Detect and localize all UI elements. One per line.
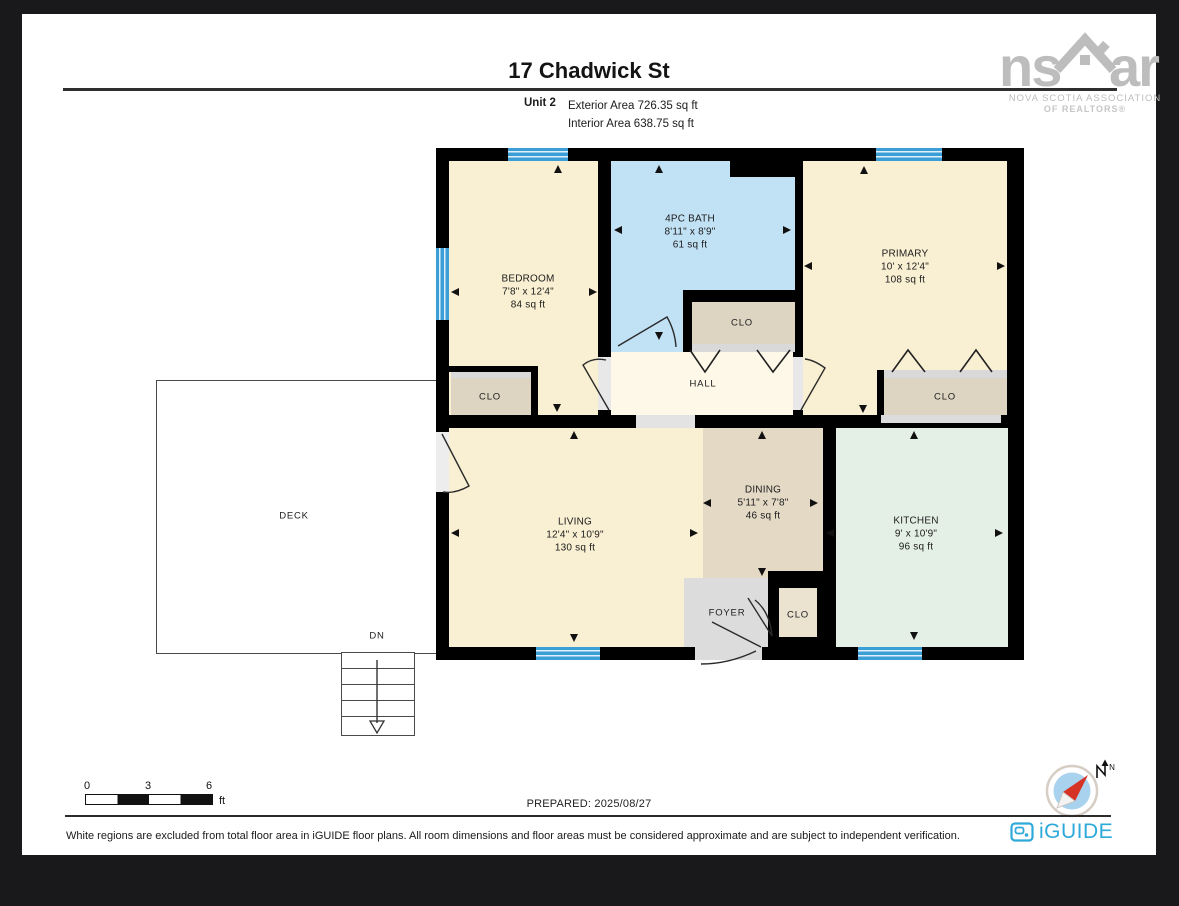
iguide-logo: iGUIDE — [1010, 820, 1113, 844]
label-stairs-dn: DN — [369, 631, 384, 642]
scale-label-3: 3 — [145, 780, 151, 792]
dim-arrow-up — [910, 431, 918, 439]
dim-arrow-down — [553, 404, 561, 412]
scale-label-0: 0 — [84, 780, 90, 792]
iguide-wordmark: iGUIDE — [1039, 820, 1113, 844]
dim-arrow-left — [451, 529, 459, 537]
label-dining: DINING 5'11" x 7'8" 46 sq ft — [738, 484, 789, 523]
footer-disclaimer: White regions are excluded from total fl… — [66, 830, 960, 842]
bifold-door-icon — [757, 350, 790, 372]
dim-arrow-right — [995, 529, 1003, 537]
label-closet: CLO — [934, 392, 956, 403]
dim-arrow-up — [570, 431, 578, 439]
bifold-door-icon — [690, 350, 720, 372]
bedroom-door-swing — [583, 359, 609, 410]
label-closet: CLO — [731, 318, 753, 329]
dim-arrow-left — [804, 262, 812, 270]
dim-arrow-left — [826, 529, 834, 537]
footer-divider — [65, 815, 1111, 817]
dim-arrow-left — [451, 288, 459, 296]
label-kitchen: KITCHEN 9' x 10'9" 96 sq ft — [893, 515, 938, 554]
dim-arrow-down — [758, 568, 766, 576]
label-living: LIVING 12'4" x 10'9" 130 sq ft — [546, 516, 603, 555]
deck-door-swing — [442, 434, 469, 492]
dim-arrow-down — [655, 332, 663, 340]
label-foyer: FOYER — [709, 608, 746, 619]
dim-arrow-right — [589, 288, 597, 296]
bifold-door-icon — [960, 350, 992, 372]
scale-label-6: 6 — [206, 780, 212, 792]
compass-icon: N — [1040, 758, 1116, 820]
label-closet: CLO — [479, 392, 501, 403]
scale-bar — [85, 794, 213, 805]
dim-arrow-up — [860, 166, 868, 174]
dim-arrow-up — [655, 165, 663, 173]
dim-arrow-right — [997, 262, 1005, 270]
door-swing-overlay — [22, 14, 1156, 855]
dim-arrow-left — [703, 499, 711, 507]
viewer-dark-frame: 17 Chadwick St Unit 2 Exterior Area 726.… — [0, 0, 1179, 906]
dim-arrow-up — [758, 431, 766, 439]
label-bath: 4PC BATH 8'11" x 8'9" 61 sq ft — [665, 213, 716, 252]
label-bedroom: BEDROOM 7'8" x 12'4" 84 sq ft — [501, 273, 554, 312]
dim-arrow-right — [783, 226, 791, 234]
iguide-camera-icon — [1010, 821, 1034, 843]
dim-arrow-right — [810, 499, 818, 507]
label-hall: HALL — [690, 379, 717, 390]
label-primary: PRIMARY 10' x 12'4" 108 sq ft — [881, 248, 929, 287]
dim-arrow-up — [554, 165, 562, 173]
label-closet: CLO — [787, 610, 809, 621]
dim-arrow-down — [859, 405, 867, 413]
compass-north-letter: N — [1109, 763, 1115, 772]
floorplan-page: 17 Chadwick St Unit 2 Exterior Area 726.… — [22, 14, 1156, 855]
scale-unit: ft — [219, 795, 225, 807]
dim-arrow-right — [690, 529, 698, 537]
bifold-door-icon — [892, 350, 925, 372]
entry-door-swing — [701, 622, 761, 664]
bath-door-swing — [618, 317, 676, 347]
dim-arrow-left — [614, 226, 622, 234]
label-deck: DECK — [279, 511, 309, 522]
dim-arrow-down — [910, 632, 918, 640]
prepared-date: PREPARED: 2025/08/27 — [527, 798, 652, 810]
primary-door-swing — [801, 359, 825, 410]
stairs-down-arrow — [370, 660, 384, 733]
dim-arrow-down — [570, 634, 578, 642]
foyer-closet-door-swing — [748, 598, 772, 636]
